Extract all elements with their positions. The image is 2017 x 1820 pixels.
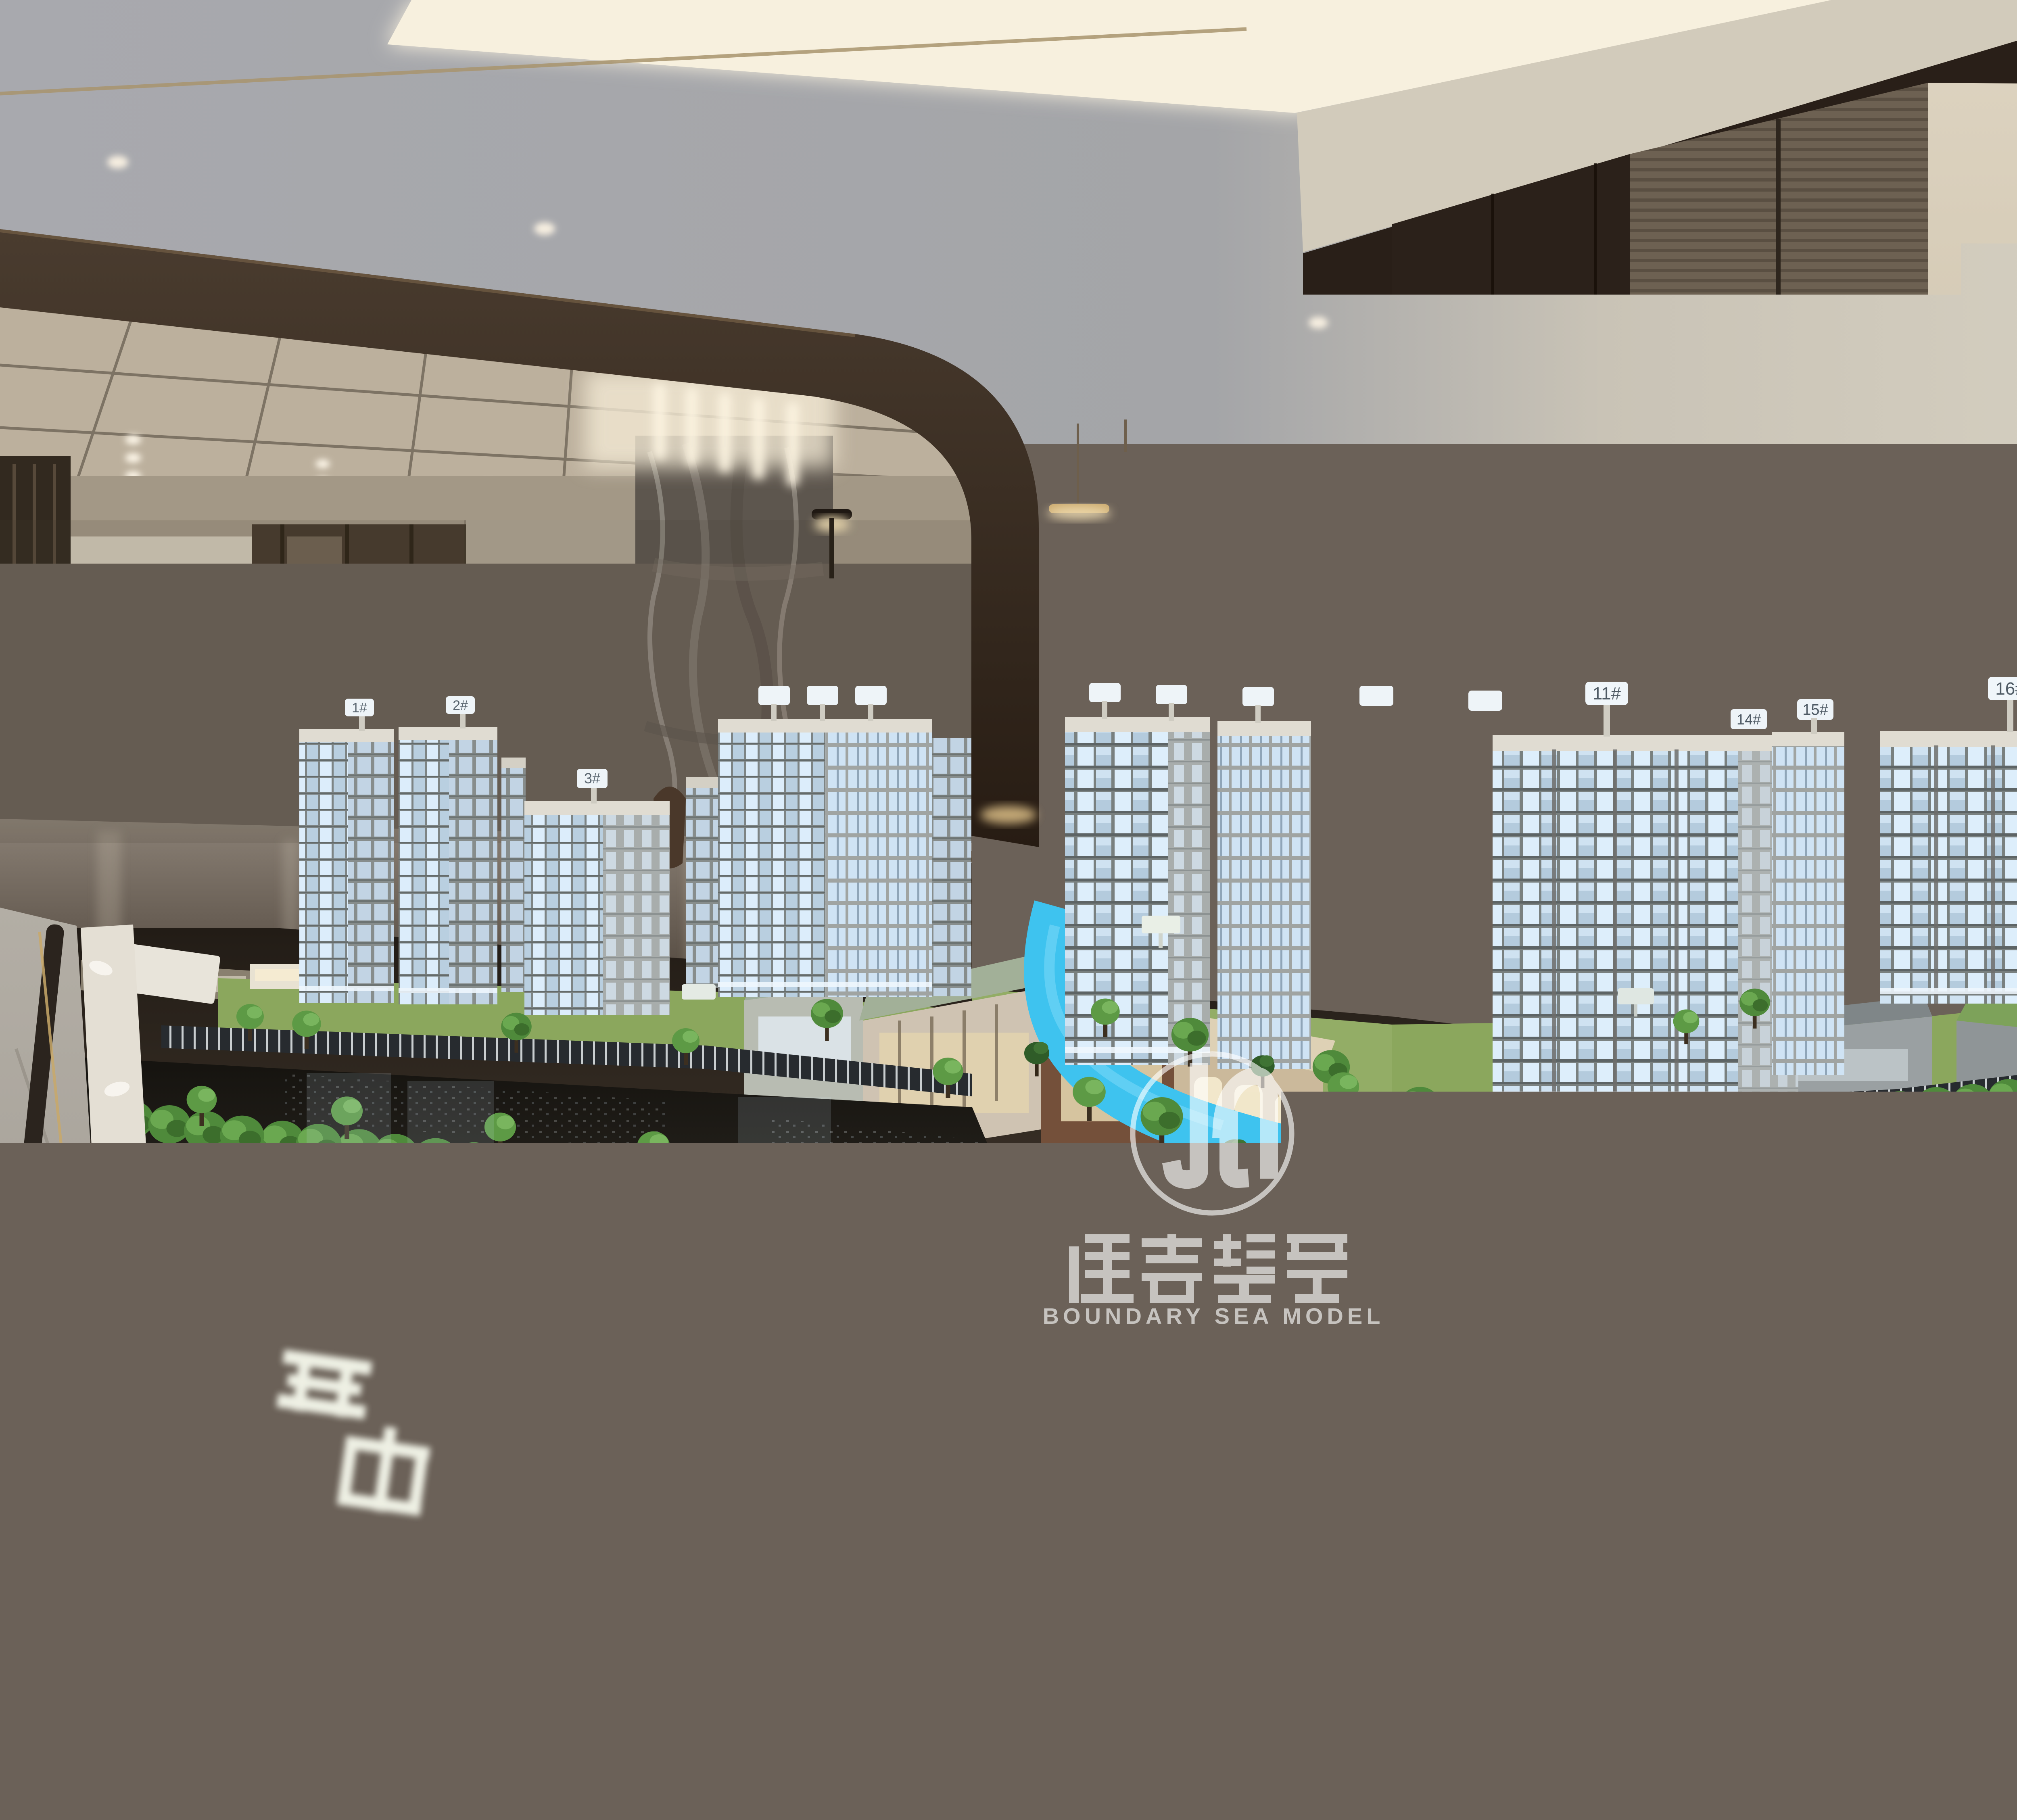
svg-text:14#: 14# <box>1737 711 1761 728</box>
svg-text:1#: 1# <box>352 700 367 716</box>
svg-text:16#: 16# <box>1995 679 2017 699</box>
svg-text:15#: 15# <box>1802 701 1828 718</box>
svg-text:3#: 3# <box>584 770 600 787</box>
svg-text:BOUNDARY SEA MODEL: BOUNDARY SEA MODEL <box>1043 1303 1384 1329</box>
svg-text:11#: 11# <box>1593 684 1621 703</box>
svg-text:2#: 2# <box>453 698 468 713</box>
